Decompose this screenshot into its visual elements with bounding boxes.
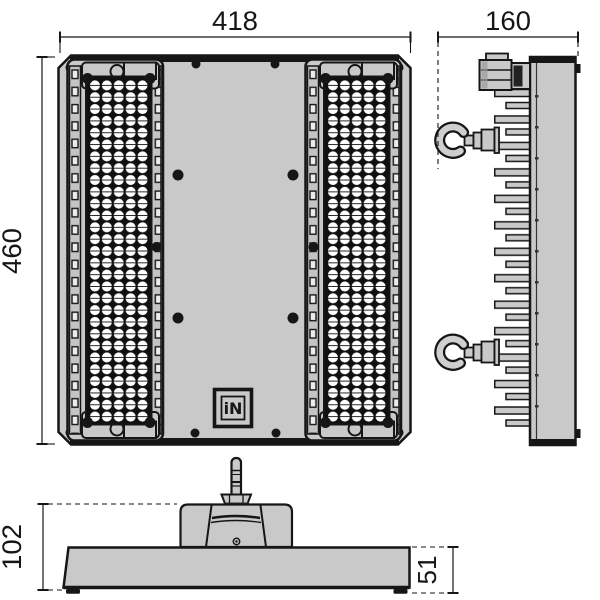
side-nub-top xyxy=(576,64,581,73)
led-lens-array xyxy=(89,80,149,423)
suspension-hook-bottom xyxy=(440,339,499,365)
dimension-label-housing-height: 51 xyxy=(412,556,442,585)
driver-housing xyxy=(181,505,293,548)
brand-logo: iN xyxy=(215,390,252,427)
base-foot-right xyxy=(394,589,408,594)
base-foot-left xyxy=(66,589,80,594)
side-view xyxy=(440,54,581,446)
dimension-label-side-depth: 160 xyxy=(485,6,531,36)
side-top-edge xyxy=(530,57,576,63)
eye-bolt xyxy=(222,458,252,507)
led-module-left xyxy=(68,60,164,441)
suspension-hook-top xyxy=(440,127,499,153)
cable-gland xyxy=(480,54,531,91)
brand-logo-text: iN xyxy=(224,399,243,418)
dimension-label-front-height: 460 xyxy=(0,228,27,274)
dimension-label-front-width: 418 xyxy=(212,6,258,36)
technical-drawing: iN xyxy=(0,0,600,600)
base-housing xyxy=(64,548,410,588)
side-nub-bottom xyxy=(576,429,581,438)
module-rail-left xyxy=(70,66,81,434)
front-view: iN xyxy=(59,56,411,445)
side-bottom-edge xyxy=(530,439,576,445)
dimension-label-total-height: 102 xyxy=(0,524,27,570)
bottom-view xyxy=(64,458,410,594)
led-module-right xyxy=(306,60,402,441)
